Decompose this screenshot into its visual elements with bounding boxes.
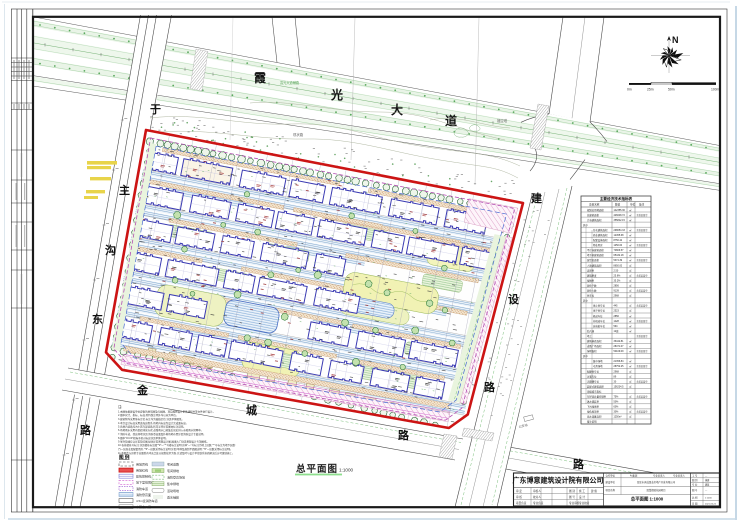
svg-text:25.6%: 25.6% bbox=[614, 274, 622, 277]
svg-text:广东博意建筑设计院有限公司: 广东博意建筑设计院有限公司 bbox=[513, 476, 604, 485]
svg-text:集中绿地: 集中绿地 bbox=[593, 359, 603, 363]
svg-text:其中: 其中 bbox=[583, 299, 588, 303]
svg-text:消防登高面: 消防登高面 bbox=[136, 492, 151, 497]
svg-text:图 别: 图 别 bbox=[569, 489, 575, 493]
svg-text:12班: 12班 bbox=[614, 329, 620, 333]
svg-text:光: 光 bbox=[330, 87, 343, 102]
svg-text:4c集团: 4c集团 bbox=[630, 474, 638, 478]
svg-text:数值: 数值 bbox=[615, 203, 621, 207]
svg-text:5374.39: 5374.39 bbox=[614, 259, 623, 262]
svg-text:人防建筑面积: 人防建筑面积 bbox=[587, 263, 602, 267]
svg-text:路: 路 bbox=[80, 423, 92, 437]
svg-text:于: 于 bbox=[150, 103, 161, 116]
svg-text:下凹绿地率: 下凹绿地率 bbox=[587, 405, 600, 409]
svg-text:建筑密度: 建筑密度 bbox=[587, 273, 597, 277]
svg-text:主要经济技术指标表: 主要经济技术指标表 bbox=[600, 196, 633, 201]
svg-text:11.本图若与其他专业图纸有冲突之处以规划批复为准,先请及时: 11.本图若与其他专业图纸有冲突之处以规划批复为准,先请及时与设计单位联系协商解… bbox=[118, 451, 235, 455]
svg-text:活动场地: 活动场地 bbox=[167, 488, 179, 493]
svg-text:50109.09: 50109.09 bbox=[614, 350, 625, 353]
svg-text:地下室建筑面积: 地下室建筑面积 bbox=[587, 253, 604, 257]
svg-text:8650.00: 8650.00 bbox=[614, 264, 623, 267]
svg-text:298654.33: 298654.33 bbox=[614, 229, 626, 232]
svg-text:1250m³: 1250m³ bbox=[614, 416, 622, 419]
svg-text:备注说明: 备注说明 bbox=[587, 420, 597, 424]
svg-text:7.消防车道、登高场地详见,消防登高面及扑救场地布置详见消防: 7.消防车道、登高场地详见,消防登高面及扑救场地布置详见消防设计专篇说明。 bbox=[118, 432, 206, 436]
svg-text:福空塔: 福空塔 bbox=[497, 118, 508, 123]
svg-text:专业负责人: 专业负责人 bbox=[653, 474, 666, 478]
svg-text:地下停车位: 地下停车位 bbox=[593, 309, 606, 313]
svg-text:容积率: 容积率 bbox=[587, 268, 595, 272]
svg-text:142355.36: 142355.36 bbox=[614, 209, 626, 212]
svg-text:审 核: 审 核 bbox=[516, 495, 522, 499]
svg-text:专业负责人: 专业负责人 bbox=[673, 474, 686, 478]
svg-text:幼儿园: 幼儿园 bbox=[587, 329, 595, 333]
svg-text:3.建筑物均采用坐标定位,标注均为轴线定位,详见单体图纸。: 3.建筑物均采用坐标定位,标注均为轴线定位,详见单体图纸。 bbox=[118, 417, 184, 421]
svg-text:图 号: 图 号 bbox=[692, 488, 698, 492]
svg-text:居住户数: 居住户数 bbox=[587, 284, 597, 288]
svg-text:1428: 1428 bbox=[614, 320, 620, 323]
svg-text:1:1000: 1:1000 bbox=[339, 468, 353, 473]
svg-text:不计容建筑面积: 不计容建筑面积 bbox=[587, 248, 604, 252]
svg-text:架空层面积: 架空层面积 bbox=[587, 258, 600, 262]
svg-text:现状路: 现状路 bbox=[293, 132, 304, 137]
svg-text:35.2%: 35.2% bbox=[614, 279, 622, 282]
svg-text:道路广场面积: 道路广场面积 bbox=[587, 344, 602, 348]
svg-text:426648.72: 426648.72 bbox=[614, 214, 626, 217]
svg-text:设 计: 设 计 bbox=[579, 495, 585, 499]
svg-text:地下室范围线: 地下室范围线 bbox=[136, 480, 154, 485]
svg-text:5.场地内道路均为小区内部道路,转弯半径详见图中标注说明。: 5.场地内道路均为小区内部道路,转弯半径详见图中标注说明。 bbox=[118, 425, 186, 429]
svg-text:备注: 备注 bbox=[639, 203, 645, 207]
svg-text:70806.57: 70806.57 bbox=[614, 249, 625, 252]
svg-text:图 例: 图 例 bbox=[119, 454, 130, 461]
svg-text:宅间道路: 宅间道路 bbox=[167, 461, 179, 466]
svg-text:海绵城市指标: 海绵城市指标 bbox=[587, 390, 602, 394]
svg-text:2856: 2856 bbox=[614, 315, 620, 318]
svg-text:8.图中"±0.00"相当于绝对标高详见单体说明。: 8.图中"±0.00"相当于绝对标高详见单体说明。 bbox=[118, 436, 168, 440]
svg-text:充电桩车位: 充电桩车位 bbox=[593, 324, 606, 328]
svg-text:主: 主 bbox=[119, 183, 130, 197]
svg-text:1:1000: 1:1000 bbox=[705, 498, 712, 500]
svg-text:日 期: 日 期 bbox=[692, 501, 698, 505]
svg-text:N: N bbox=[672, 35, 679, 45]
svg-text:工 号: 工 号 bbox=[692, 474, 698, 478]
svg-text:绿色屋顶率: 绿色屋顶率 bbox=[587, 410, 600, 414]
svg-text:项目名称: 项目名称 bbox=[589, 203, 600, 207]
svg-text:2856: 2856 bbox=[614, 285, 620, 288]
svg-text:156234.5: 156234.5 bbox=[614, 385, 625, 388]
svg-text:住宅建筑面积: 住宅建筑面积 bbox=[593, 228, 608, 232]
svg-text:1250.00: 1250.00 bbox=[614, 244, 623, 247]
svg-text:445: 445 bbox=[614, 305, 619, 308]
svg-text:透水铺装: 透水铺装 bbox=[167, 494, 179, 499]
svg-text:集中绿地: 集中绿地 bbox=[167, 481, 179, 486]
svg-text:21356.84: 21356.84 bbox=[614, 360, 625, 363]
svg-text:霞光大道辅路: 霞光大道辅路 bbox=[280, 80, 300, 85]
svg-text:无障碍车位: 无障碍车位 bbox=[587, 379, 600, 383]
svg-text:装配式建筑面积: 装配式建筑面积 bbox=[587, 384, 604, 388]
svg-text:地上停车位: 地上停车位 bbox=[593, 304, 606, 308]
svg-text:大: 大 bbox=[391, 102, 403, 117]
svg-text:道: 道 bbox=[445, 113, 457, 128]
svg-text:施 工: 施 工 bbox=[579, 489, 585, 493]
svg-text:路: 路 bbox=[398, 428, 410, 442]
svg-text:建筑基底面积: 建筑基底面积 bbox=[587, 339, 602, 343]
svg-text:4.5m宽消防车道: 4.5m宽消防车道 bbox=[136, 498, 158, 503]
svg-text:2968: 2968 bbox=[614, 295, 620, 298]
svg-text:沟: 沟 bbox=[105, 243, 116, 257]
svg-text:宅间绿地: 宅间绿地 bbox=[167, 468, 179, 473]
svg-text:0m: 0m bbox=[627, 88, 632, 92]
svg-text:图 号: 图 号 bbox=[569, 495, 575, 499]
svg-text:居住人数: 居住人数 bbox=[587, 289, 597, 293]
svg-text:绿地率: 绿地率 bbox=[587, 278, 595, 282]
svg-text:项目负责: 项目负责 bbox=[516, 501, 527, 505]
svg-text:路: 路 bbox=[573, 457, 585, 471]
svg-text:2021.06.22: 2021.06.22 bbox=[705, 503, 717, 505]
svg-text:地上: 地上 bbox=[587, 334, 592, 338]
svg-text:消防车道: 消防车道 bbox=[136, 486, 148, 491]
svg-text:2523: 2523 bbox=[614, 310, 620, 313]
svg-text:注:: 注: bbox=[118, 404, 122, 409]
svg-text:2.50: 2.50 bbox=[614, 269, 619, 272]
svg-text:非机动车位: 非机动车位 bbox=[593, 319, 606, 323]
svg-text:合作单位: 合作单位 bbox=[606, 474, 616, 478]
svg-text:专业校对: 专业校对 bbox=[579, 501, 590, 505]
svg-text:访客车位: 访客车位 bbox=[587, 374, 597, 378]
svg-text:规划总用地面积: 规划总用地面积 bbox=[587, 208, 604, 212]
svg-text:建设单位: 建设单位 bbox=[606, 480, 616, 484]
svg-text:配建停车位: 配建停车位 bbox=[587, 369, 600, 373]
svg-text:25m: 25m bbox=[647, 88, 654, 92]
svg-text:建 施: 建 施 bbox=[591, 489, 597, 493]
svg-text:其中: 其中 bbox=[583, 354, 588, 358]
svg-text:4.本次设计标高采用黄海高程系,场地内标高为设计完成面标高。: 4.本次设计标高采用黄海高程系,场地内标高为设计完成面标高。 bbox=[118, 421, 188, 425]
svg-text:专业负责: 专业负责 bbox=[533, 501, 544, 505]
svg-text:设: 设 bbox=[508, 292, 520, 306]
svg-text:项目名称: 项目名称 bbox=[606, 488, 616, 492]
svg-text:商业建筑面积: 商业建筑面积 bbox=[593, 233, 608, 237]
svg-text:355842.15: 355842.15 bbox=[614, 219, 626, 222]
svg-text:9.室外管线综合详见管综图,绿化详见景观设计图,围墙大门详见: 9.室外管线综合详见管综图,绿化详见景观设计图,围墙大门详见景观设计专项图纸。 bbox=[118, 440, 209, 444]
svg-text:停车位: 停车位 bbox=[587, 294, 595, 298]
svg-text:2.图中尺寸、坐标、标高,除特殊注明外均以米为单位。: 2.图中尺寸、坐标、标高,除特殊注明外均以米为单位。 bbox=[118, 413, 178, 417]
svg-text:6.场地雨水采用有组织排放方式,道路雨水口收集后就近排入市政: 6.场地雨水采用有组织排放方式,道路雨水口收集后就近排入市政雨水管网中。 bbox=[118, 428, 203, 432]
svg-text:总平面图: 总平面图 bbox=[296, 463, 338, 475]
svg-text:雨水调蓄容积: 雨水调蓄容积 bbox=[587, 415, 602, 419]
svg-text:专 业: 专 业 bbox=[692, 482, 698, 486]
svg-text:50m: 50m bbox=[668, 88, 675, 92]
svg-text:(*)一层商业及配套用房,"*#"一层数采用标注说明:详见(: (*)一层商业及配套用房,"*#"一层数采用标注说明:详见(单体及规划平面图说明… bbox=[118, 447, 233, 451]
svg-text:路: 路 bbox=[484, 380, 496, 394]
svg-text:总建筑面积: 总建筑面积 bbox=[587, 213, 600, 217]
svg-text:晟業德賦花园项目: 晟業德賦花园项目 bbox=[646, 488, 665, 492]
svg-text:总平面图 1:1000: 总平面图 1:1000 bbox=[631, 496, 664, 503]
svg-text:城: 城 bbox=[246, 403, 257, 417]
svg-text:用地界线: 用地界线 bbox=[136, 461, 148, 466]
svg-text:用地红线: 用地红线 bbox=[136, 468, 148, 473]
svg-text:36442.81: 36442.81 bbox=[614, 340, 625, 343]
svg-text:金: 金 bbox=[136, 383, 149, 397]
svg-text:机动车位: 机动车位 bbox=[593, 314, 603, 318]
svg-text:绿地面积: 绿地面积 bbox=[587, 349, 597, 353]
svg-text:12455.68: 12455.68 bbox=[614, 234, 625, 237]
svg-text:审 定: 审 定 bbox=[516, 489, 522, 493]
svg-text:8756.42: 8756.42 bbox=[614, 239, 623, 242]
svg-text:年径流总量控制率: 年径流总量控制率 bbox=[587, 395, 607, 399]
svg-text:透水铺装率: 透水铺装率 bbox=[587, 400, 600, 404]
svg-text:建: 建 bbox=[531, 191, 543, 205]
svg-text:消防登高场地: 消防登高场地 bbox=[167, 475, 185, 480]
svg-text:其中: 其中 bbox=[583, 223, 588, 227]
svg-text:霞: 霞 bbox=[254, 71, 267, 85]
svg-text:9139: 9139 bbox=[614, 290, 620, 293]
svg-text:物业用房: 物业用房 bbox=[593, 243, 603, 247]
svg-text:1.本图依据建设单位提供的地形图及红线图、项目规划设计条件通: 1.本图依据建设单位提供的地形图及红线图、项目规划设计条件通知书等文件进行设计。 bbox=[118, 410, 215, 414]
svg-text:单位: 单位 bbox=[630, 203, 636, 207]
svg-text:宅旁绿地: 宅旁绿地 bbox=[593, 364, 603, 368]
svg-text:65432.18: 65432.18 bbox=[614, 254, 625, 257]
svg-text:校对人: 校对人 bbox=[533, 495, 541, 499]
svg-text:28471.07: 28471.07 bbox=[614, 345, 625, 348]
svg-text:28752.25: 28752.25 bbox=[614, 365, 625, 368]
svg-text:图 别: 图 别 bbox=[692, 478, 698, 482]
svg-text:10.各栋楼栋号标注,详见楼栋标注图"*#"一"*"号楼标注: 10.各栋楼栋号标注,详见楼栋标注图"*#"一"*"号楼标注说明:其中"一"号标… bbox=[118, 443, 236, 447]
svg-text:100m: 100m bbox=[711, 88, 720, 92]
svg-text:审核人: 审核人 bbox=[533, 489, 541, 493]
svg-text:东: 东 bbox=[92, 312, 103, 326]
svg-text:计容建筑面积: 计容建筑面积 bbox=[587, 218, 602, 222]
svg-text:594: 594 bbox=[614, 325, 619, 328]
svg-text:某某市天成晟业房地产开发有限公司: 某某市天成晟业房地产开发有限公司 bbox=[637, 480, 676, 484]
svg-text:比 例: 比 例 bbox=[692, 496, 698, 500]
svg-text:2968: 2968 bbox=[614, 370, 620, 373]
svg-text:建筑控制线: 建筑控制线 bbox=[136, 474, 151, 479]
svg-text:配套设施面积: 配套设施面积 bbox=[593, 238, 608, 242]
